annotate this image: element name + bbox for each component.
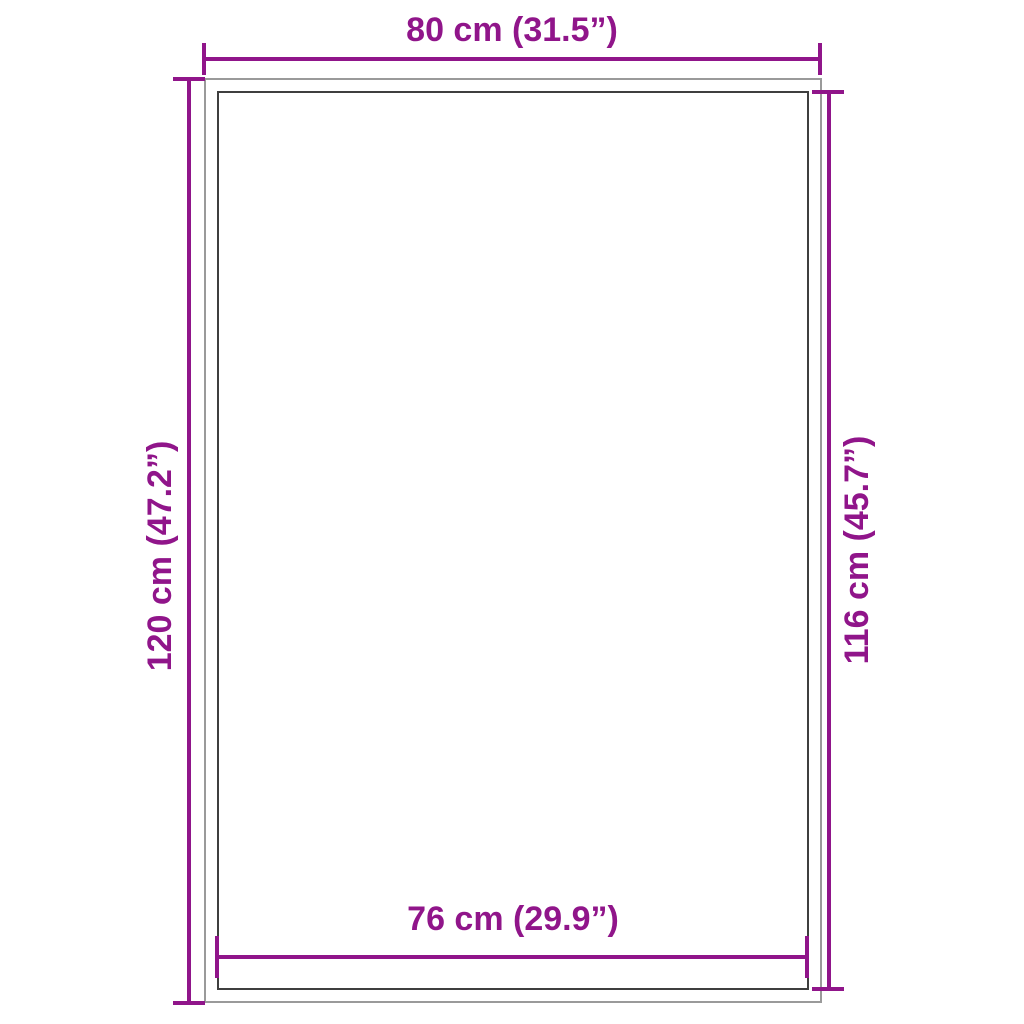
dimension-bottom-line bbox=[216, 955, 808, 959]
dimension-right-line bbox=[827, 91, 831, 989]
dimension-top-tick-right bbox=[818, 43, 822, 75]
dimension-bottom-tick-right bbox=[805, 936, 809, 978]
dimension-bottom-label: 76 cm (29.9”) bbox=[313, 899, 713, 939]
dimension-bottom-tick-left bbox=[215, 936, 219, 978]
dimension-right-label: 116 cm (45.7”) bbox=[837, 300, 877, 800]
product-dimension-diagram: 80 cm (31.5”) 120 cm (47.2”) 116 cm (45.… bbox=[0, 0, 1024, 1024]
dimension-top-line bbox=[202, 57, 822, 61]
inner-outline bbox=[217, 91, 809, 990]
dimension-left-label: 120 cm (47.2”) bbox=[140, 306, 180, 806]
dimension-top-tick-left bbox=[202, 43, 206, 75]
dimension-right-tick-top bbox=[812, 90, 844, 94]
dimension-left-tick-bottom bbox=[173, 1001, 205, 1005]
dimension-right-tick-bottom bbox=[812, 987, 844, 991]
dimension-left-line bbox=[187, 78, 191, 1004]
dimension-left-tick-top bbox=[173, 77, 205, 81]
dimension-top-label: 80 cm (31.5”) bbox=[312, 10, 712, 50]
